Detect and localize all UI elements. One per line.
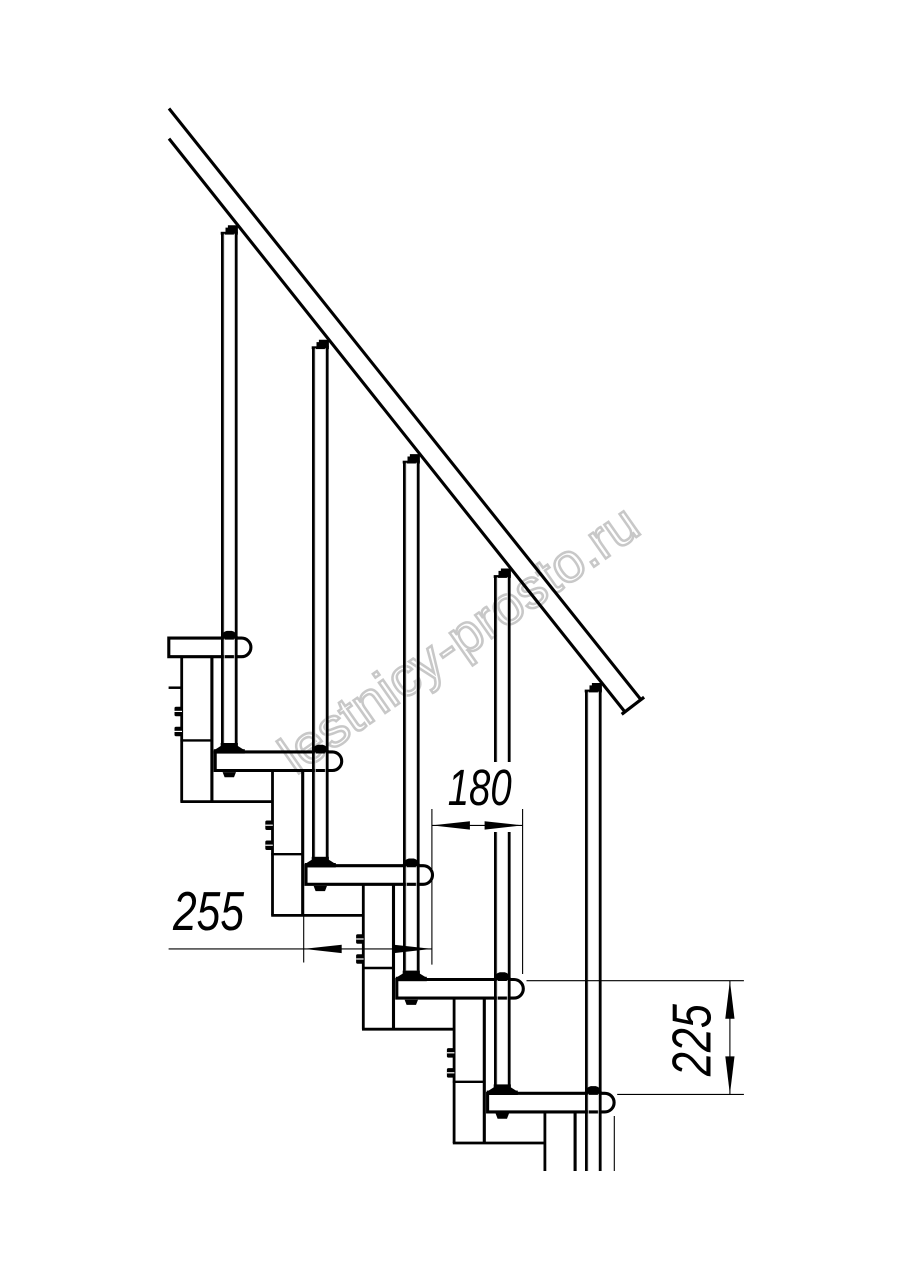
svg-text:255: 255 [172, 880, 244, 942]
svg-text:225: 225 [661, 1004, 723, 1077]
svg-text:180: 180 [448, 759, 512, 816]
